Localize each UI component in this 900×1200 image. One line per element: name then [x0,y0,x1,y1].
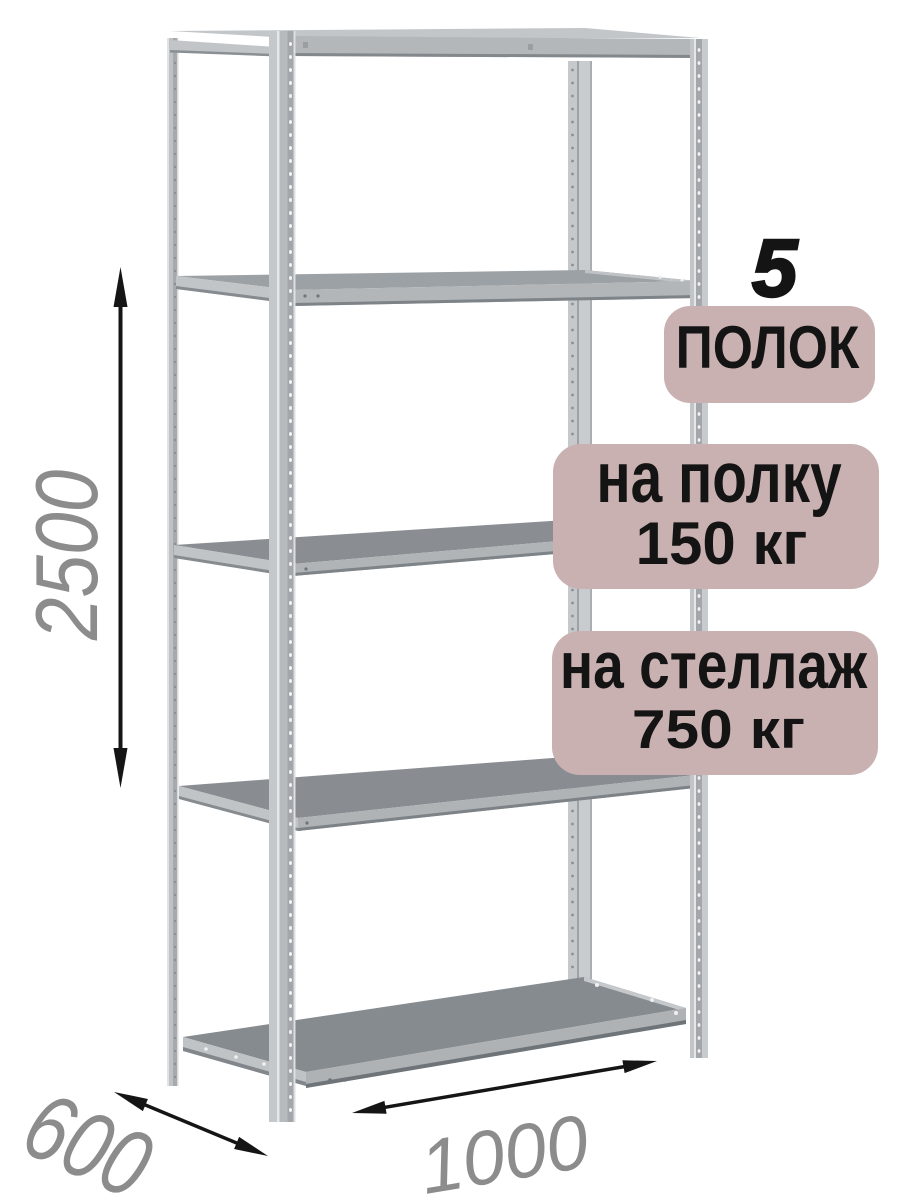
svg-text:2500: 2500 [18,470,116,641]
svg-text:на стеллаж: на стеллаж [560,628,868,702]
svg-text:750 кг: 750 кг [632,699,805,760]
svg-text:5: 5 [752,223,799,314]
svg-text:150 кг: 150 кг [636,510,808,577]
svg-text:на полку: на полку [596,438,842,518]
svg-text:ПОЛОК: ПОЛОК [676,313,860,381]
